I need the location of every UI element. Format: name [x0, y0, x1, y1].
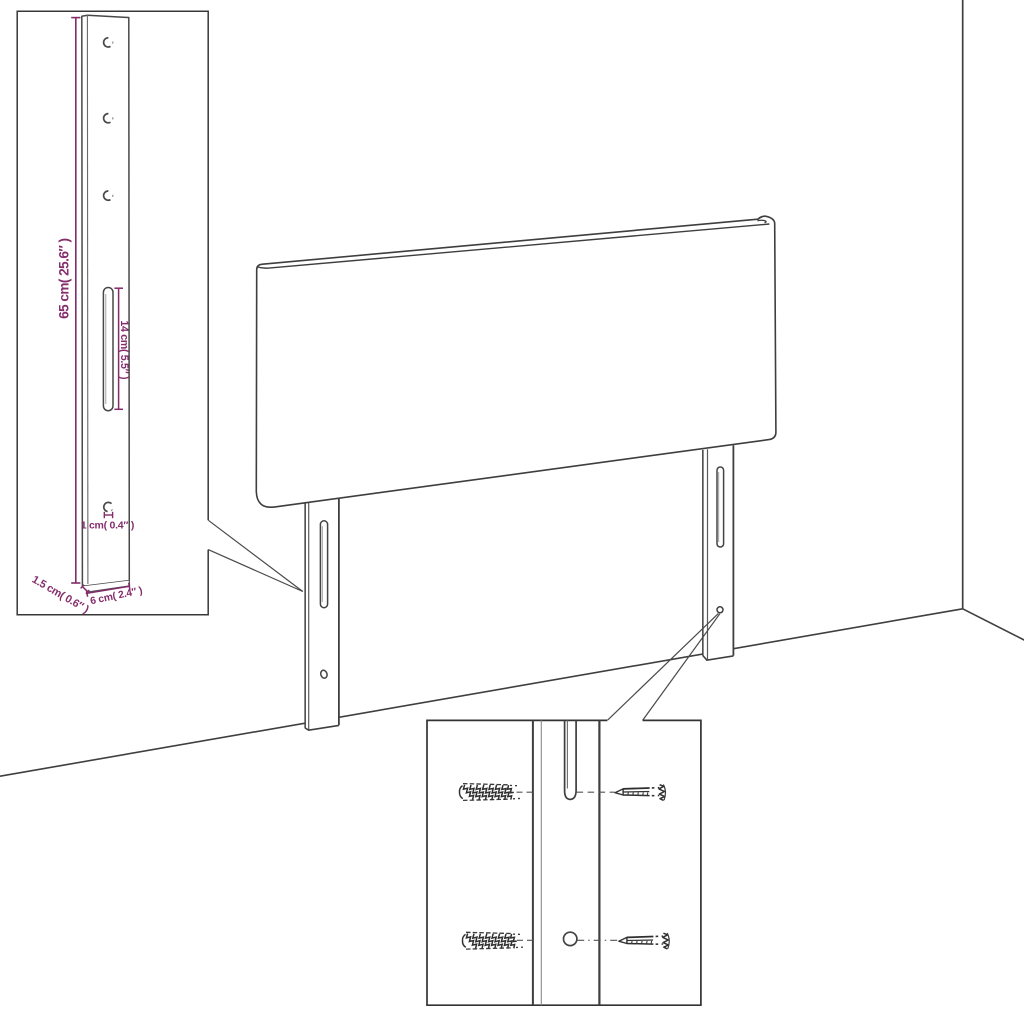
- svg-text:65 cm( 25.6″ ): 65 cm( 25.6″ ): [56, 238, 71, 318]
- svg-text:14 cm( 5.5″ ): 14 cm( 5.5″ ): [118, 320, 130, 380]
- svg-text:1 cm( 0.4″ ): 1 cm( 0.4″ ): [81, 520, 134, 532]
